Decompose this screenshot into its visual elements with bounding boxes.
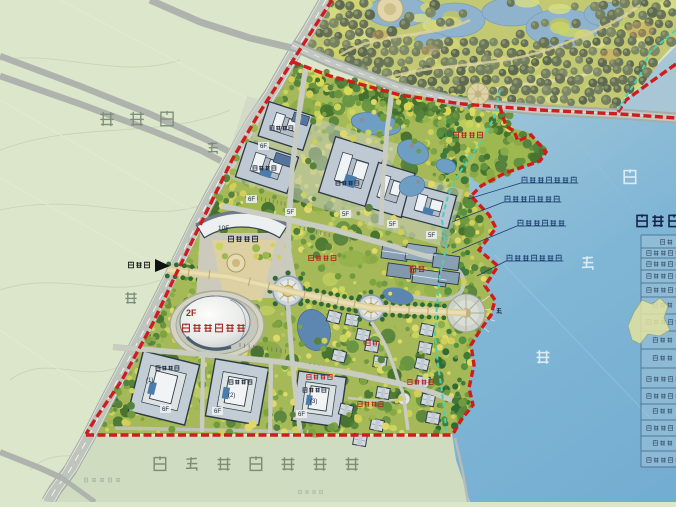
svg-text:10F: 10F	[218, 225, 229, 232]
svg-text:(3): (3)	[310, 399, 317, 405]
svg-text:5F: 5F	[342, 212, 349, 218]
svg-text:6F: 6F	[162, 407, 169, 413]
svg-text:(2): (2)	[228, 393, 235, 399]
svg-text:6F: 6F	[248, 197, 255, 203]
svg-text:6F: 6F	[298, 412, 305, 418]
svg-text:5F: 5F	[389, 222, 396, 228]
svg-text:6F: 6F	[260, 144, 267, 150]
svg-text:5F: 5F	[287, 210, 294, 216]
svg-text:6F: 6F	[214, 409, 221, 415]
svg-text:(1): (1)	[146, 378, 153, 384]
svg-text:5F: 5F	[428, 233, 435, 239]
svg-text:2F: 2F	[186, 308, 197, 318]
